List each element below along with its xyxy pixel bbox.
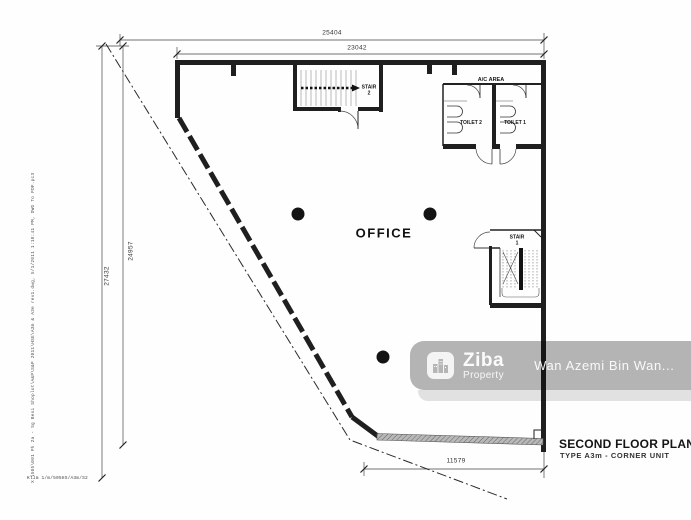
floor-plan-image: 25404 23042 27432 24957 11579 OFFICE STA…: [0, 0, 691, 520]
bottom-wall-hatched: [377, 434, 543, 446]
watermark-brand-subtitle: Property: [463, 371, 504, 381]
stair-2-label: STAIR 2: [362, 85, 377, 97]
toilet-1-label: TOILET 1: [504, 120, 526, 126]
dimension-top-inner-label: 23042: [347, 45, 367, 52]
stair-1-label-line2: 1: [510, 241, 525, 247]
ac-area-label: A/C AREA: [478, 77, 504, 83]
toilet-block: [443, 84, 543, 164]
dimension-top-outer-label: 25404: [322, 30, 342, 37]
floor-plan-title: SECOND FLOOR PLAN: [559, 437, 691, 451]
office-label: OFFICE: [356, 226, 413, 241]
boundary-line: [106, 44, 507, 499]
ziba-logo-icon: [427, 352, 454, 379]
toilet-2-label: TOILET 2: [460, 120, 482, 126]
plot-stamp-side: X:\505\001 Ph 2a - Sg Besi Shoplot\A&P\S…: [31, 183, 36, 483]
dimension-bottom-label: 11579: [446, 458, 465, 465]
stair-1-label: STAIR 1: [510, 235, 525, 247]
watermark-band-shadow: [418, 390, 691, 401]
stair-1: [474, 230, 543, 308]
dimension-left-outer-label: 27432: [104, 266, 111, 286]
floor-plan-subtitle: TYPE A3m - CORNER UNIT: [560, 451, 670, 460]
watermark-brand: Ziba Property: [463, 351, 504, 381]
dimension-left-inner-label: 24957: [128, 241, 135, 261]
angled-curtain-wall: [179, 118, 379, 437]
watermark-agent-name: Wan Azemi Bin Wan...: [534, 358, 674, 373]
watermark: Ziba Property Wan Azemi Bin Wan...: [410, 341, 691, 390]
stair-2-label-line2: 2: [362, 91, 377, 97]
plot-stamp-bottom: Kllm 1/m/505HS/A3m/S2: [27, 476, 88, 481]
watermark-brand-name: Ziba: [463, 351, 504, 370]
bottom-right-notch: [534, 430, 541, 439]
dimension-lines: [96, 33, 548, 482]
